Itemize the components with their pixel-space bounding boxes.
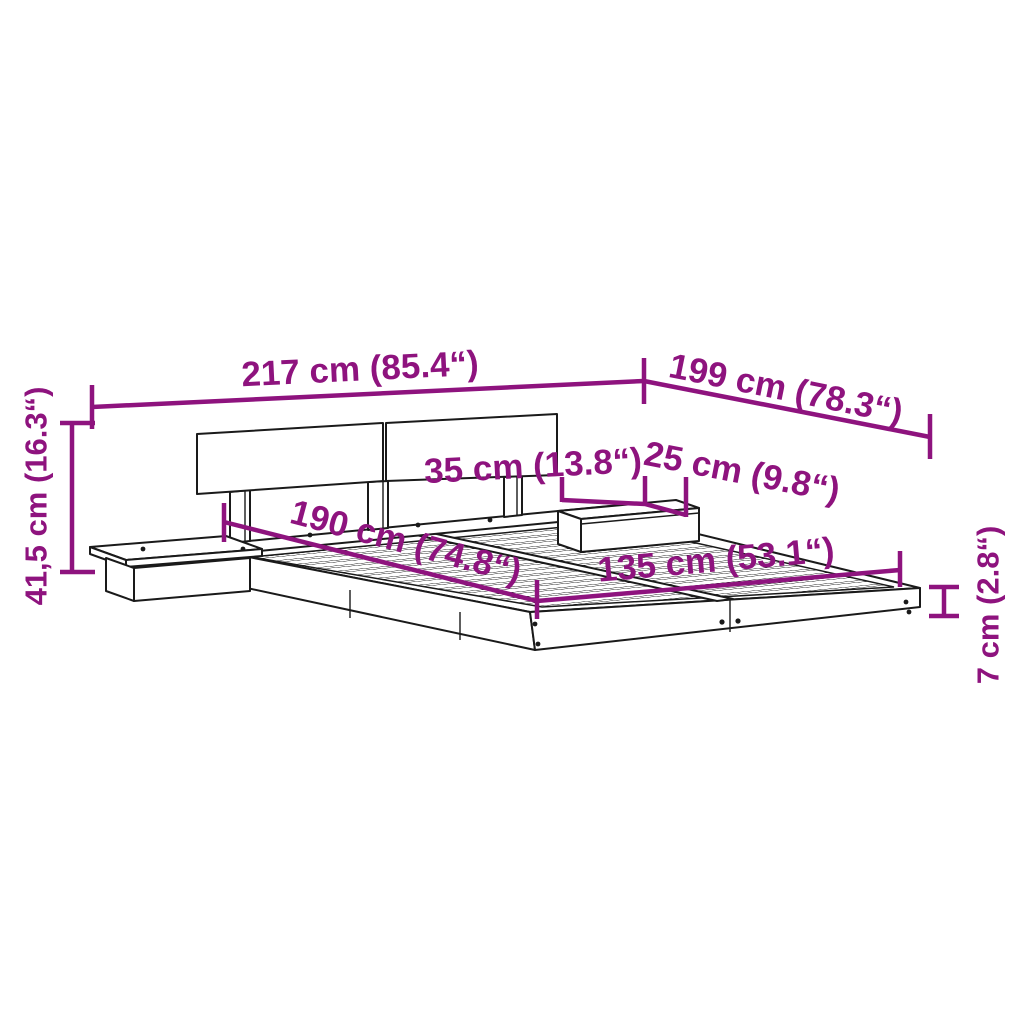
- label-frame-thickness: 7 cm (2.8“): [971, 526, 1006, 685]
- dimension-diagram: 217 cm (85.4“) 199 cm (78.3“) 41,5 cm (1…: [0, 0, 1024, 1024]
- label-overall-length: 199 cm (78.3“): [666, 346, 906, 432]
- label-overall-width: 217 cm (85.4“): [241, 344, 480, 395]
- dim-frame-thickness: [929, 587, 959, 616]
- post-left: [230, 490, 250, 543]
- left-shelf: [90, 536, 262, 601]
- bed-dimension-drawing: 217 cm (85.4“) 199 cm (78.3“) 41,5 cm (1…: [0, 0, 1024, 1024]
- right-shelf-side: [558, 511, 581, 552]
- headboard-panel-left: [197, 423, 383, 494]
- label-overall-height: 41,5 cm (16.3“): [19, 387, 54, 606]
- label-shelf-depth: 25 cm (9.8“): [641, 434, 843, 510]
